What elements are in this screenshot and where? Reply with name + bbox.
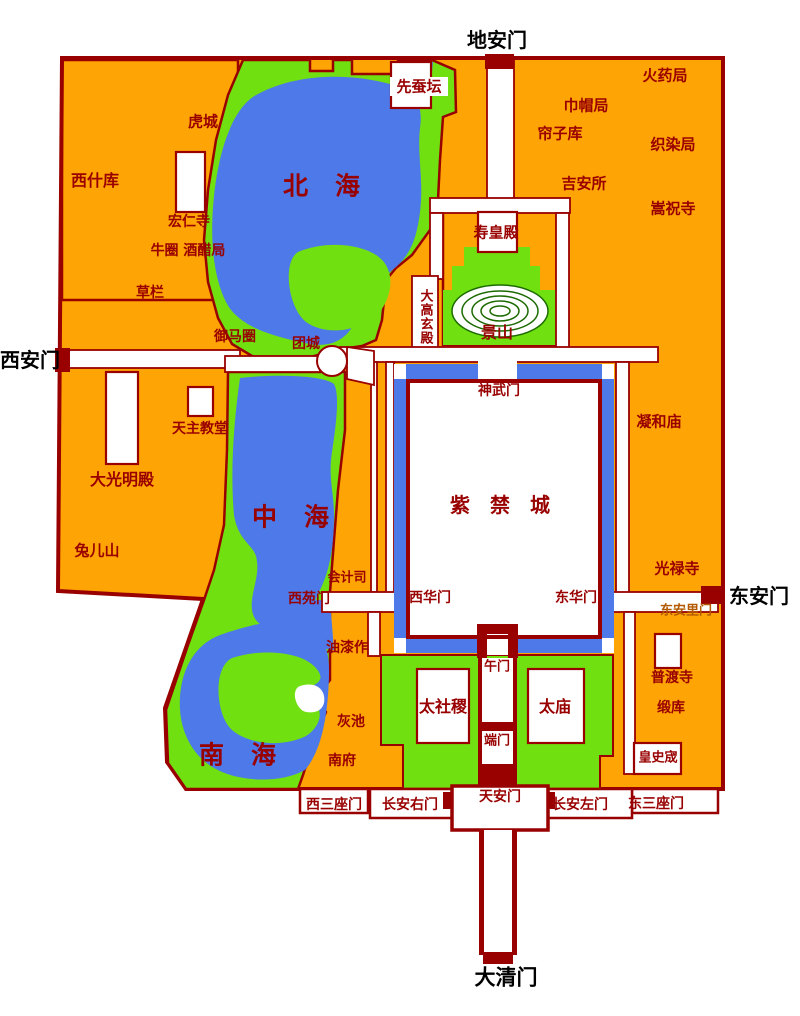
label-xiyuanmen: 西苑门 xyxy=(288,592,330,606)
label-tiananmen: 天安门 xyxy=(479,790,521,804)
duanmen-gate xyxy=(478,722,517,731)
forbidden-city-north-road xyxy=(340,347,658,362)
label-shouhuangdian: 寿皇殿 xyxy=(473,226,518,241)
tuancheng-block xyxy=(347,347,374,385)
label-yumajuan: 御马圈 xyxy=(214,330,256,344)
label-changanzuomen: 长安左门 xyxy=(552,798,608,812)
jingshan-north-road xyxy=(430,198,570,213)
label-pudusi: 普渡寺 xyxy=(651,671,693,685)
label-donganmen: 东安门 xyxy=(729,586,789,606)
moat-corner-se xyxy=(602,638,614,653)
label-zhiranju: 织染局 xyxy=(650,138,695,153)
donganmen-gate-icon xyxy=(701,586,725,604)
label-beihai: 北 海 xyxy=(283,174,361,199)
imperial-city-map: 地安门 先蚕坛 火药局 巾帽局 帘子库 织染局 虎城 西什库 宏仁寺 牛圈 酒醋… xyxy=(0,0,800,1016)
label-tuancheng: 团城 xyxy=(292,337,320,351)
west-moat-road xyxy=(386,362,394,593)
label-xishiku: 西什库 xyxy=(71,173,119,189)
label-changanyoumen: 长安右门 xyxy=(382,798,438,812)
moat-corner-ne xyxy=(602,364,614,379)
dianmen-gate-icon xyxy=(485,54,514,69)
west-south-road xyxy=(368,612,380,656)
label-donghuamen: 东华门 xyxy=(555,591,597,605)
moat-corner-nw xyxy=(394,364,406,379)
label-songzhusi: 嵩祝寺 xyxy=(650,202,695,217)
label-jinmaoju: 巾帽局 xyxy=(563,99,608,114)
label-huoyaoju: 火药局 xyxy=(642,69,687,84)
label-xihuamen: 西华门 xyxy=(409,591,451,605)
jingshan-east-road xyxy=(556,213,569,349)
label-taimiao: 太庙 xyxy=(539,699,571,715)
label-hucheng: 虎城 xyxy=(188,115,218,130)
label-zhonghai: 中 海 xyxy=(252,505,330,530)
label-huangshicheng: 皇史宬 xyxy=(638,752,677,765)
east-moat-road xyxy=(616,362,629,593)
pudusi-box xyxy=(655,634,681,668)
label-niujuan-jiucuju: 牛圈 酒醋局 xyxy=(151,244,226,258)
label-dagaoxuandian: 大高玄殿 xyxy=(419,289,432,345)
daguangmingdian-box xyxy=(106,372,138,464)
west-moat-lane xyxy=(371,362,377,592)
label-guanglusi: 光禄寺 xyxy=(654,562,699,577)
label-tuershan: 兔儿山 xyxy=(74,544,119,559)
label-wumen: 午门 xyxy=(484,661,510,674)
label-youqizuo: 油漆作 xyxy=(326,641,368,655)
label-shenwumen: 神武门 xyxy=(478,384,520,398)
label-ninghemiao: 凝和庙 xyxy=(636,415,681,430)
label-duanku: 缎库 xyxy=(657,701,685,715)
wumen-east-wing xyxy=(508,628,518,658)
moat-corner-sw xyxy=(394,638,406,653)
label-duanmen: 端门 xyxy=(484,735,510,748)
qianbu-corridor-west-wall xyxy=(479,830,484,955)
label-zijincheng: 紫 禁 城 xyxy=(450,495,550,515)
label-nanfu: 南府 xyxy=(328,754,356,768)
label-dongsanzuomen: 东三座门 xyxy=(628,797,684,811)
hongrensi-box xyxy=(176,152,205,212)
label-hongrensi: 宏仁寺 xyxy=(168,215,210,229)
label-xisanzuomen: 西三座门 xyxy=(306,798,362,812)
daqingmen-gate-icon xyxy=(483,952,513,964)
label-caolan: 草栏 xyxy=(136,286,164,300)
label-huijisi: 会计司 xyxy=(327,572,366,585)
label-daguangmingdian: 大光明殿 xyxy=(90,472,154,488)
moat-gap-north xyxy=(478,360,517,382)
label-taisheji: 太社稷 xyxy=(419,699,467,715)
label-nanhai: 南 海 xyxy=(199,743,277,768)
label-dianmen: 地安门 xyxy=(467,30,527,50)
label-huichi: 灰池 xyxy=(337,715,365,729)
bridge-road xyxy=(225,356,320,372)
label-xianmen: 西安门 xyxy=(0,350,60,370)
label-daqingmen: 大清门 xyxy=(475,968,538,989)
label-lianziku: 帘子库 xyxy=(537,127,582,142)
tuancheng-circle xyxy=(317,346,347,376)
label-xiancantan: 先蚕坛 xyxy=(396,80,441,95)
jingshan-west-road xyxy=(430,213,443,279)
xianmen-road xyxy=(60,350,240,368)
tianzhujiaotang-box xyxy=(188,387,213,416)
wumen-west-wing xyxy=(477,628,487,658)
qianbu-corridor-east-wall xyxy=(512,830,517,955)
label-donganlimen: 东安里门 xyxy=(660,605,712,618)
label-jiansuo: 吉安所 xyxy=(561,177,606,192)
label-tianzhujiaotang: 天主教堂 xyxy=(172,422,228,436)
qianbu-corridor xyxy=(484,830,512,955)
label-jingshan: 景山 xyxy=(481,325,513,341)
dianmen-road xyxy=(487,60,514,200)
